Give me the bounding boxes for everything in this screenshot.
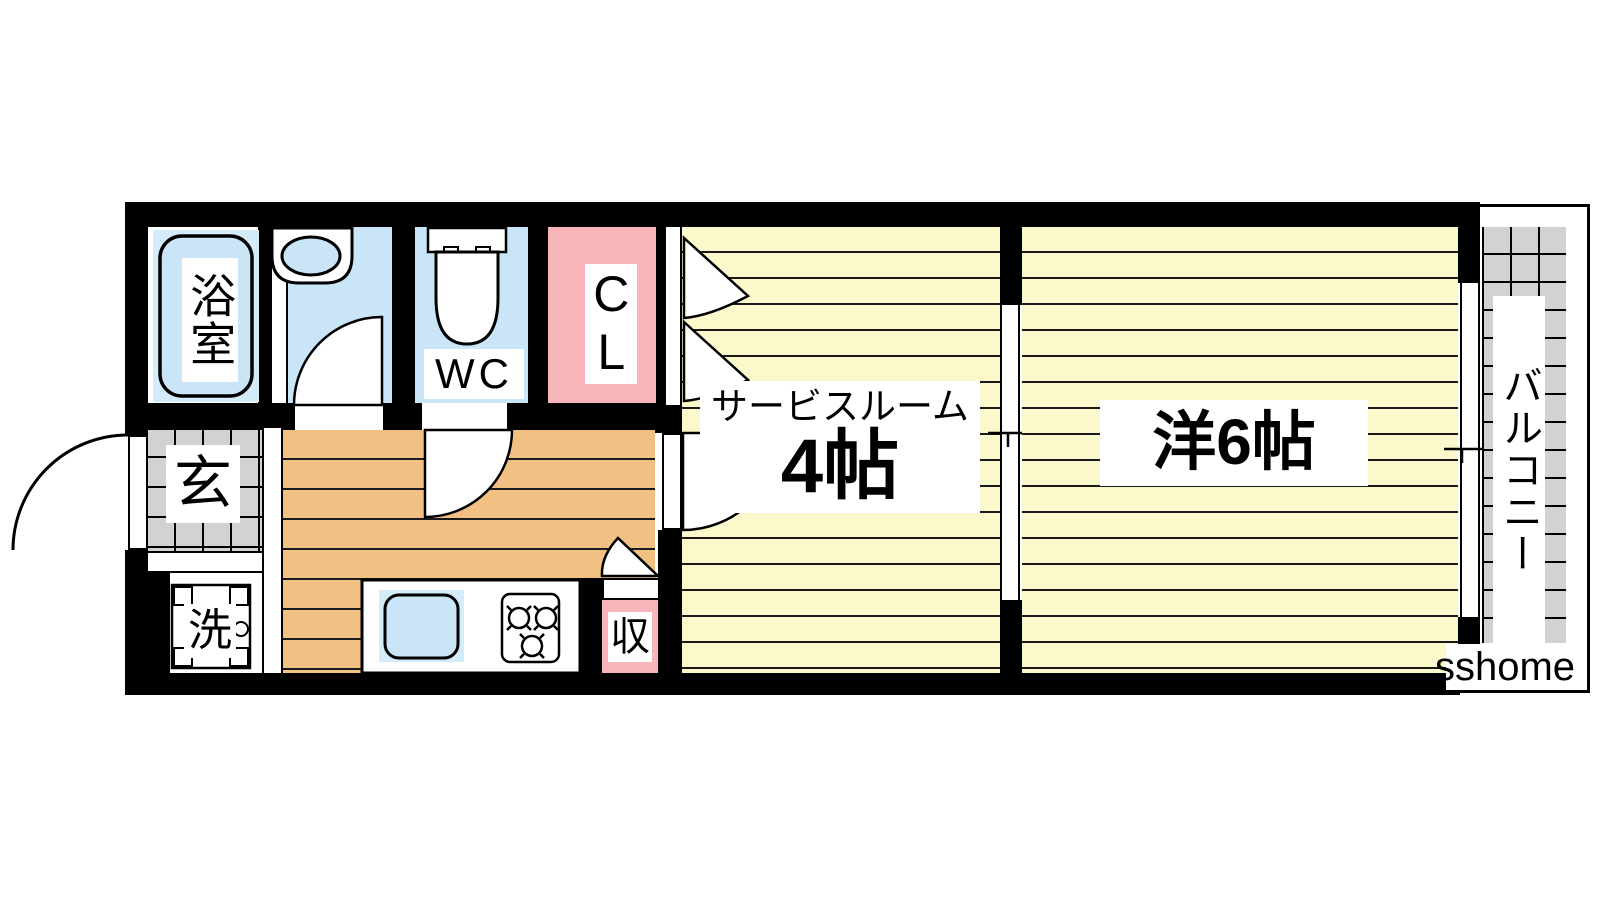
bath-door-panel [270,227,288,403]
hall-strip [262,428,283,673]
wall-partition-top [1000,227,1022,305]
wall-laundry-left [148,573,170,673]
entrance-door-arc [13,435,128,550]
service-door-frame [662,433,682,530]
entrance-label: 玄 [166,445,240,523]
laundry-label: 洗 [184,604,236,658]
wall-closet-right [656,227,664,403]
wall-service-stub [655,403,682,433]
closet-label: CL [585,264,637,384]
wall-mid-1 [148,403,295,430]
balcony-rail-top [1480,204,1590,207]
service-room-name: サービスルーム [711,388,969,427]
balcony-rail-bottom [1458,690,1590,693]
wall-service-lower [658,530,682,673]
entrance-step [148,551,262,573]
service-room-label: サービスルーム 4帖 [700,381,980,513]
partition-sliding-door [1000,305,1020,600]
wall-left-upper [125,227,148,435]
balcony-label: バルコニー [1493,296,1545,644]
wall-mid-2 [383,403,422,430]
wall-right-top [1458,220,1480,283]
balcony-rail-right [1587,204,1590,693]
storage-door-frame [602,578,660,600]
storage-label: 収 [608,612,652,662]
wall-bath-washroom [258,227,270,403]
washroom [288,227,392,403]
entrance-door-leaf [128,435,148,550]
closet-door-frame [664,227,682,405]
wc-label: WC [424,349,524,399]
wall-bottom [125,673,1460,695]
bath-label: 浴室 [182,258,238,382]
western-room-label: 洋6帖 [1100,400,1368,486]
balcony-window [1460,283,1480,617]
washroom-door-gap [295,405,383,430]
floor-plan: 浴室 WC CL サービスルーム 4帖 洋6帖 バルコニー 玄 洗 収 ssho… [0,0,1600,900]
wall-partition-bottom [1000,600,1022,673]
wall-top [125,202,1480,227]
service-room-size: 4帖 [781,427,899,507]
watermark-label: sshome [1446,644,1564,690]
wc-door-gap [422,405,507,430]
wall-wc-closet [528,227,548,403]
wall-storage-left [580,578,602,673]
wall-washroom-wc [392,227,415,403]
wall-right-bottom [1458,617,1480,645]
